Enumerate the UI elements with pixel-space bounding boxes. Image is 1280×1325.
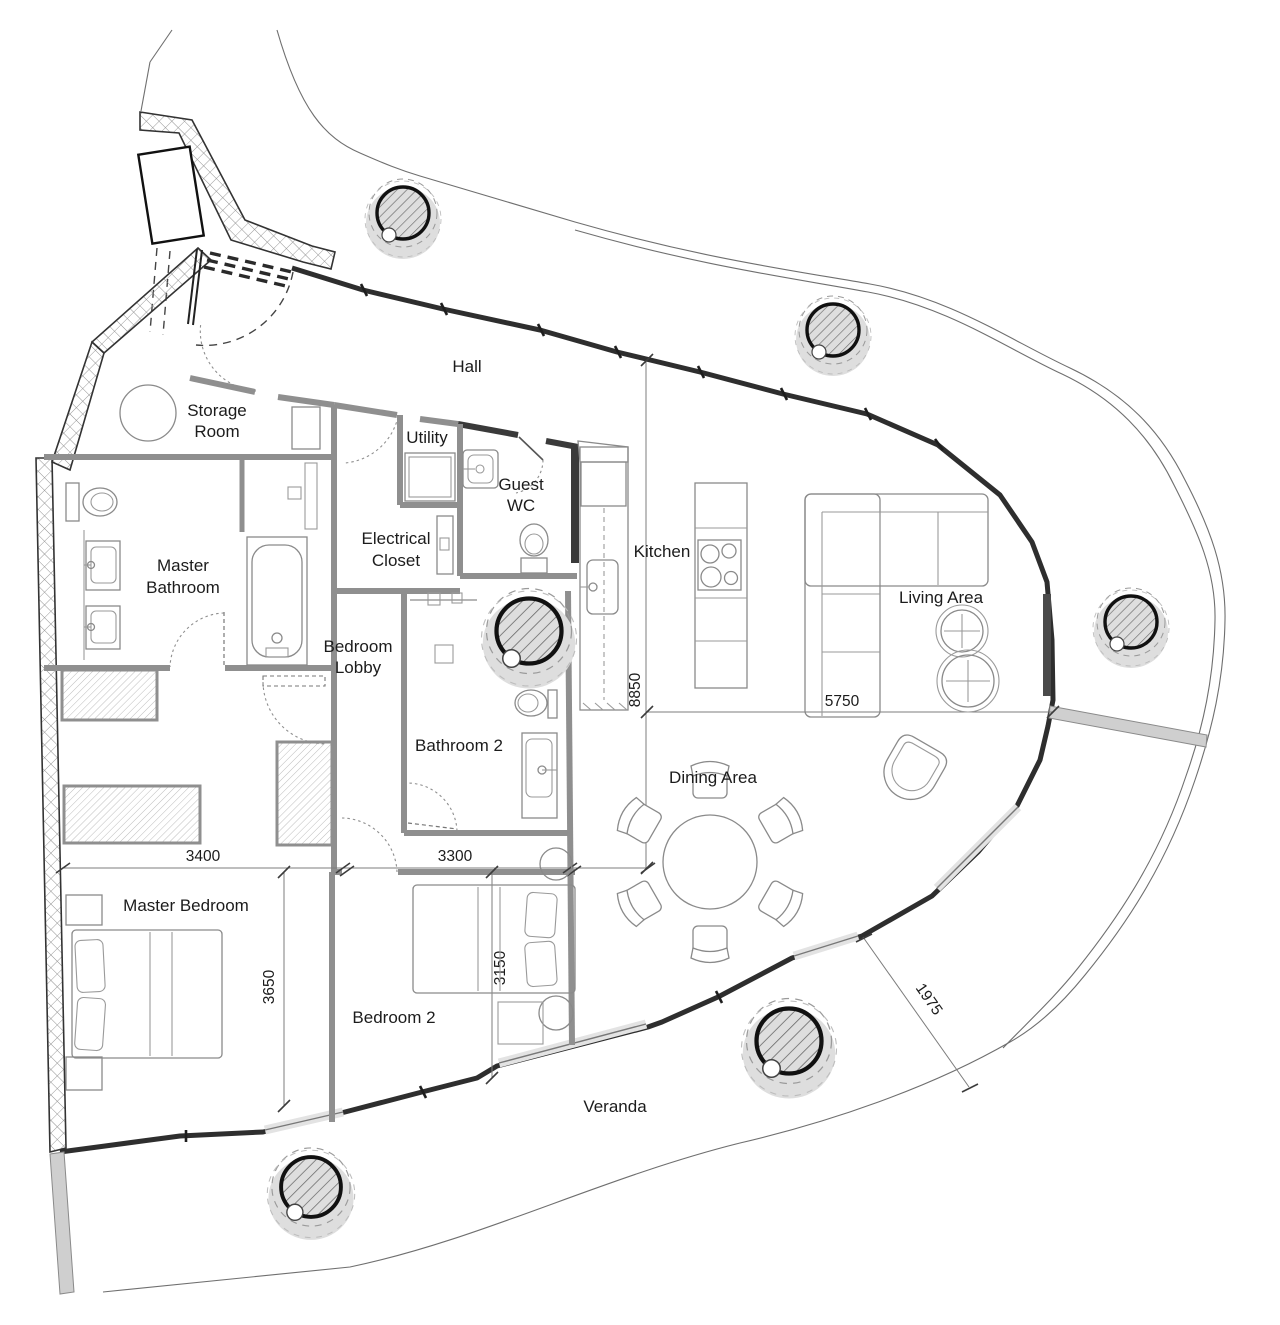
room-label-bedroom-lobby-line2: Lobby xyxy=(335,658,382,677)
room-label-dining-area: Dining Area xyxy=(669,768,757,787)
dimension-5750: 5750 xyxy=(825,693,860,710)
room-label-bathroom-2: Bathroom 2 xyxy=(415,736,503,755)
veranda-windows xyxy=(265,594,1051,1130)
guest-wc-fixtures xyxy=(463,450,548,573)
dining-furniture xyxy=(613,731,950,962)
room-labels: Hall Storage Room Utility Guest WC Kitch… xyxy=(123,357,983,1116)
room-label-bedroom-2: Bedroom 2 xyxy=(352,1008,435,1027)
floor-plan-drawing: 3400 3300 8850 5750 3650 3150 1975 xyxy=(0,0,1280,1325)
bedroom2-furniture xyxy=(413,848,575,1044)
dimension-8850: 8850 xyxy=(627,672,644,707)
room-label-guest-wc-line1: Guest xyxy=(498,475,544,494)
dimension-3300: 3300 xyxy=(438,848,473,865)
room-label-master-bedroom: Master Bedroom xyxy=(123,896,249,915)
veranda-partition-right xyxy=(1049,706,1207,747)
room-label-kitchen: Kitchen xyxy=(634,542,691,561)
floor-plan-page: 3400 3300 8850 5750 3650 3150 1975 xyxy=(0,0,1280,1325)
master-bedroom-furniture xyxy=(66,895,222,1090)
room-label-master-bathroom-line1: Master xyxy=(157,556,209,575)
room-label-electrical-closet-line2: Closet xyxy=(372,551,420,570)
room-label-guest-wc-line2: WC xyxy=(507,496,535,515)
left-exterior-wall xyxy=(36,458,66,1152)
wall-ticks xyxy=(186,284,943,1142)
room-label-veranda: Veranda xyxy=(583,1097,647,1116)
veranda-partition-left xyxy=(50,1152,74,1294)
living-area-window xyxy=(1043,594,1051,696)
room-label-hall: Hall xyxy=(452,357,481,376)
room-label-master-bathroom-line2: Bathroom xyxy=(146,578,220,597)
dimension-3650: 3650 xyxy=(261,969,278,1004)
wardrobes xyxy=(62,508,371,845)
room-label-living-area: Living Area xyxy=(899,588,984,607)
dimension-3400: 3400 xyxy=(186,848,221,865)
site-boundary xyxy=(103,30,1225,1292)
room-label-bedroom-lobby-line1: Bedroom xyxy=(324,637,393,656)
room-label-storage-line1: Storage xyxy=(187,401,247,420)
room-label-electrical-closet-line1: Electrical xyxy=(362,529,431,548)
room-label-utility: Utility xyxy=(406,428,448,447)
kitchen-fixtures xyxy=(578,441,747,710)
room-label-storage-line2: Room xyxy=(194,422,239,441)
